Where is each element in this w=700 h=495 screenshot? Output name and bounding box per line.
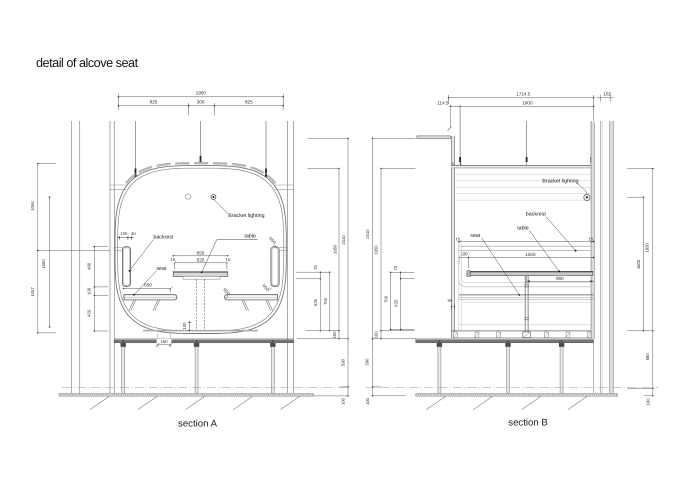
svg-text:625: 625: [394, 299, 399, 307]
svg-text:150: 150: [161, 339, 169, 344]
svg-text:650: 650: [197, 250, 205, 255]
svg-text:1950: 1950: [332, 244, 337, 254]
svg-text:620: 620: [197, 258, 205, 263]
svg-text:detail of alcove seat: detail of alcove seat: [36, 56, 139, 70]
svg-text:Bracket lighting: Bracket lighting: [542, 178, 578, 184]
svg-text:1800: 1800: [636, 259, 641, 269]
svg-text:15: 15: [588, 237, 593, 242]
svg-text:100: 100: [373, 331, 378, 339]
svg-text:75: 75: [313, 265, 318, 270]
svg-text:seat: seat: [470, 233, 481, 239]
svg-text:1600: 1600: [522, 101, 533, 106]
svg-text:102: 102: [603, 92, 611, 97]
svg-text:100: 100: [120, 231, 128, 236]
svg-text:825: 825: [150, 100, 158, 105]
svg-text:2410: 2410: [341, 235, 346, 245]
svg-text:1500: 1500: [525, 252, 536, 257]
svg-text:15: 15: [455, 237, 460, 242]
svg-text:40: 40: [131, 231, 136, 236]
svg-text:30: 30: [447, 298, 452, 303]
svg-text:100: 100: [645, 398, 650, 406]
svg-text:100: 100: [340, 397, 345, 405]
svg-text:Bracket lighting: Bracket lighting: [228, 213, 264, 219]
svg-text:1056: 1056: [30, 201, 35, 211]
svg-text:680: 680: [645, 353, 650, 361]
svg-text:table: table: [517, 225, 529, 231]
svg-text:seat: seat: [156, 266, 167, 272]
svg-text:590: 590: [341, 358, 346, 366]
svg-text:1714.5: 1714.5: [516, 92, 530, 97]
svg-text:420: 420: [87, 309, 92, 317]
svg-text:1950: 1950: [645, 242, 650, 252]
svg-text:table: table: [244, 234, 256, 240]
svg-text:100: 100: [182, 322, 187, 330]
svg-text:590: 590: [365, 358, 370, 366]
svg-text:625: 625: [313, 298, 318, 306]
svg-text:1950: 1950: [196, 91, 207, 96]
svg-text:700: 700: [384, 295, 389, 303]
svg-text:1660: 1660: [41, 259, 46, 269]
svg-text:1057: 1057: [30, 287, 35, 297]
svg-text:1950: 1950: [374, 245, 379, 255]
svg-text:backrest: backrest: [153, 234, 174, 240]
svg-text:section B: section B: [508, 418, 547, 429]
svg-text:backrest: backrest: [526, 212, 547, 218]
svg-text:800: 800: [556, 276, 564, 281]
svg-text:100: 100: [87, 287, 92, 295]
svg-text:15: 15: [170, 257, 175, 262]
svg-text:825: 825: [245, 100, 253, 105]
svg-text:300: 300: [197, 100, 205, 105]
svg-text:480: 480: [87, 262, 92, 270]
svg-text:75: 75: [393, 265, 398, 270]
svg-text:700: 700: [323, 297, 328, 305]
svg-text:section A: section A: [178, 418, 218, 429]
svg-text:100: 100: [332, 331, 337, 339]
svg-text:550: 550: [144, 283, 152, 288]
svg-text:114.5: 114.5: [437, 101, 449, 106]
svg-text:100: 100: [365, 397, 370, 405]
svg-text:2410: 2410: [365, 229, 370, 239]
